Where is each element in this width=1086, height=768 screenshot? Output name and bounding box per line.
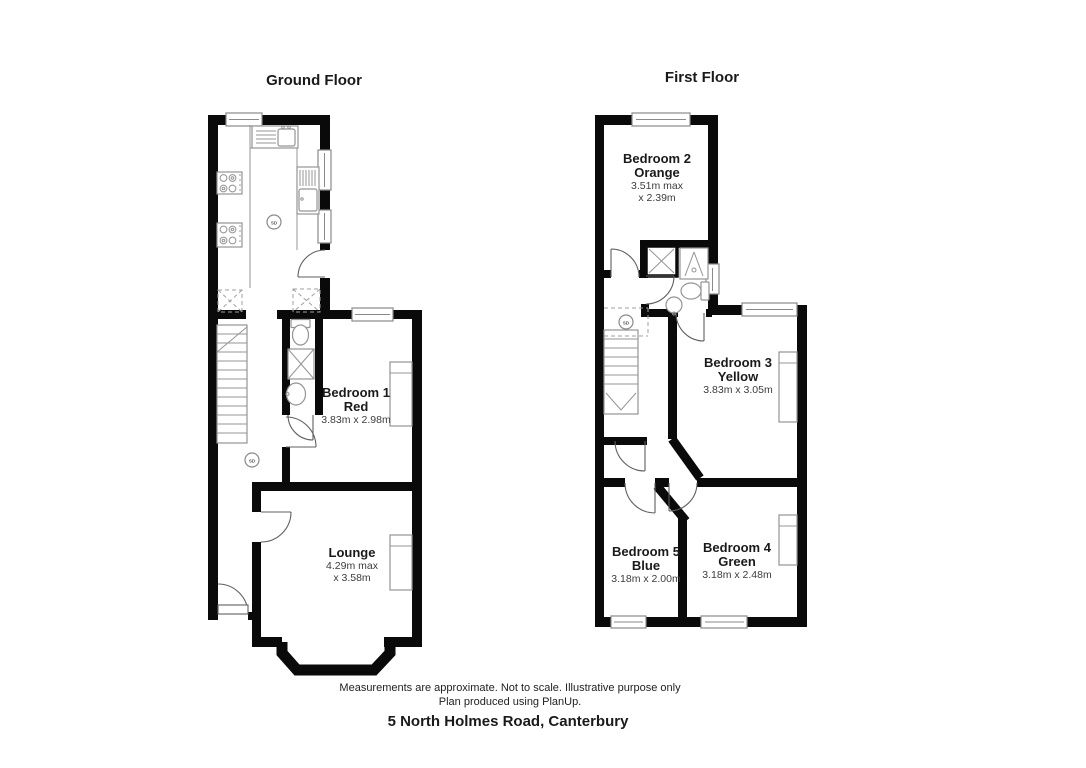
room-label-bedroom-4: Bedroom 4 Green 3.18m x 2.48m [702, 541, 771, 581]
first-floor-title: First Floor [665, 69, 739, 86]
room-dims-line2: x 2.39m [623, 192, 691, 204]
room-name: Bedroom 5 [611, 545, 680, 559]
landing-angled-wall [672, 439, 700, 478]
kitchen-right-window-upper [318, 150, 331, 190]
kitchen-fixtures: SD [217, 125, 320, 312]
landing-door [615, 441, 645, 471]
ground-floor-furniture [390, 362, 412, 590]
kitchen-right-window-lower [318, 210, 331, 243]
bathroom-fixtures [286, 320, 314, 406]
disclaimer-line2: Plan produced using PlanUp. [339, 696, 680, 710]
bedroom-3-door [676, 313, 704, 341]
room-label-bedroom-3: Bedroom 3 Yellow 3.83m x 3.05m [703, 356, 772, 396]
toilet-first [681, 282, 709, 300]
svg-text:SD: SD [271, 221, 278, 226]
disclaimer: Measurements are approximate. Not to sca… [339, 682, 680, 709]
room-color: Yellow [703, 370, 772, 384]
smoke-detector-hall: SD [245, 453, 259, 467]
kitchen-side-door [298, 250, 325, 277]
svg-text:SD: SD [249, 459, 256, 464]
room-label-bedroom-5: Bedroom 5 Blue 3.18m x 2.00m [611, 545, 680, 585]
bedroom-2-door [611, 249, 639, 277]
room-color: Green [702, 555, 771, 569]
room-color: Orange [623, 166, 691, 180]
bedroom-4-bed [779, 515, 797, 565]
smoke-detector-kitchen: SD [267, 215, 281, 229]
room-dims-line1: 3.51m max [623, 180, 691, 192]
room-name: Bedroom 2 [623, 152, 691, 166]
bedroom-4-window [701, 616, 747, 628]
bedroom-5-window [611, 616, 646, 628]
bedroom-3-window [742, 303, 797, 316]
bay-window-wall [282, 642, 390, 670]
room-dims: 3.18m x 2.48m [702, 569, 771, 581]
room-color: Blue [611, 559, 680, 573]
toilet-ground [291, 320, 310, 346]
bedroom-3-bed [779, 352, 797, 422]
front-door [218, 584, 248, 614]
bedroom-5-door [625, 483, 655, 513]
room-color: Red [321, 400, 390, 414]
ground-floor-stairs [217, 325, 247, 443]
shower-cubicle-left [646, 246, 677, 276]
floorplan-canvas: SD [0, 0, 1086, 768]
disclaimer-line1: Measurements are approximate. Not to sca… [339, 682, 680, 696]
bedroom-1-bed [390, 362, 412, 426]
basin-ground [286, 383, 306, 405]
floorplan-page: SD [0, 0, 1086, 768]
room-dims-line1: 4.29m max [326, 560, 378, 572]
bedroom-divider-angled-wall [657, 486, 686, 521]
cupboard-dashed-left [218, 290, 242, 312]
lounge-furniture [390, 535, 412, 590]
room-name: Bedroom 1 [321, 386, 390, 400]
ground-floor-title: Ground Floor [266, 72, 362, 89]
svg-text:SD: SD [623, 321, 630, 326]
smoke-detector-landing: SD [619, 315, 633, 329]
kitchen-counter [250, 125, 297, 288]
shower-ground [288, 349, 314, 379]
ground-floor-windows [226, 113, 393, 321]
room-name: Bedroom 4 [702, 541, 771, 555]
room-dims-line2: x 3.58m [326, 572, 378, 584]
first-floor-stairs [604, 330, 638, 414]
hob-upper [217, 172, 242, 194]
room-name: Bedroom 3 [703, 356, 772, 370]
room-dims: 3.83m x 2.98m [321, 414, 390, 426]
room-name: Lounge [326, 546, 378, 560]
kitchen-sink-top [252, 126, 298, 148]
kitchen-top-window [226, 113, 262, 126]
room-label-bedroom-1: Bedroom 1 Red 3.83m x 2.98m [321, 386, 390, 426]
shower-room-fixtures [646, 246, 709, 315]
room-label-lounge: Lounge 4.29m max x 3.58m [326, 546, 378, 584]
hob-lower [217, 223, 242, 247]
kitchen-sink-right [297, 167, 319, 214]
room-label-bedroom-2: Bedroom 2 Orange 3.51m max x 2.39m [623, 152, 691, 204]
first-floor-furniture [779, 352, 797, 565]
bedroom-1-window [352, 308, 393, 321]
lounge-door [261, 512, 291, 542]
cupboard-dashed-right [293, 289, 320, 312]
shower-cubicle-right [680, 248, 708, 279]
bedroom-2-window [632, 113, 690, 126]
room-dims: 3.18m x 2.00m [611, 573, 680, 585]
bedroom-1-door [286, 417, 316, 447]
room-dims: 3.83m x 3.05m [703, 384, 772, 396]
property-address: 5 North Holmes Road, Canterbury [388, 713, 629, 730]
